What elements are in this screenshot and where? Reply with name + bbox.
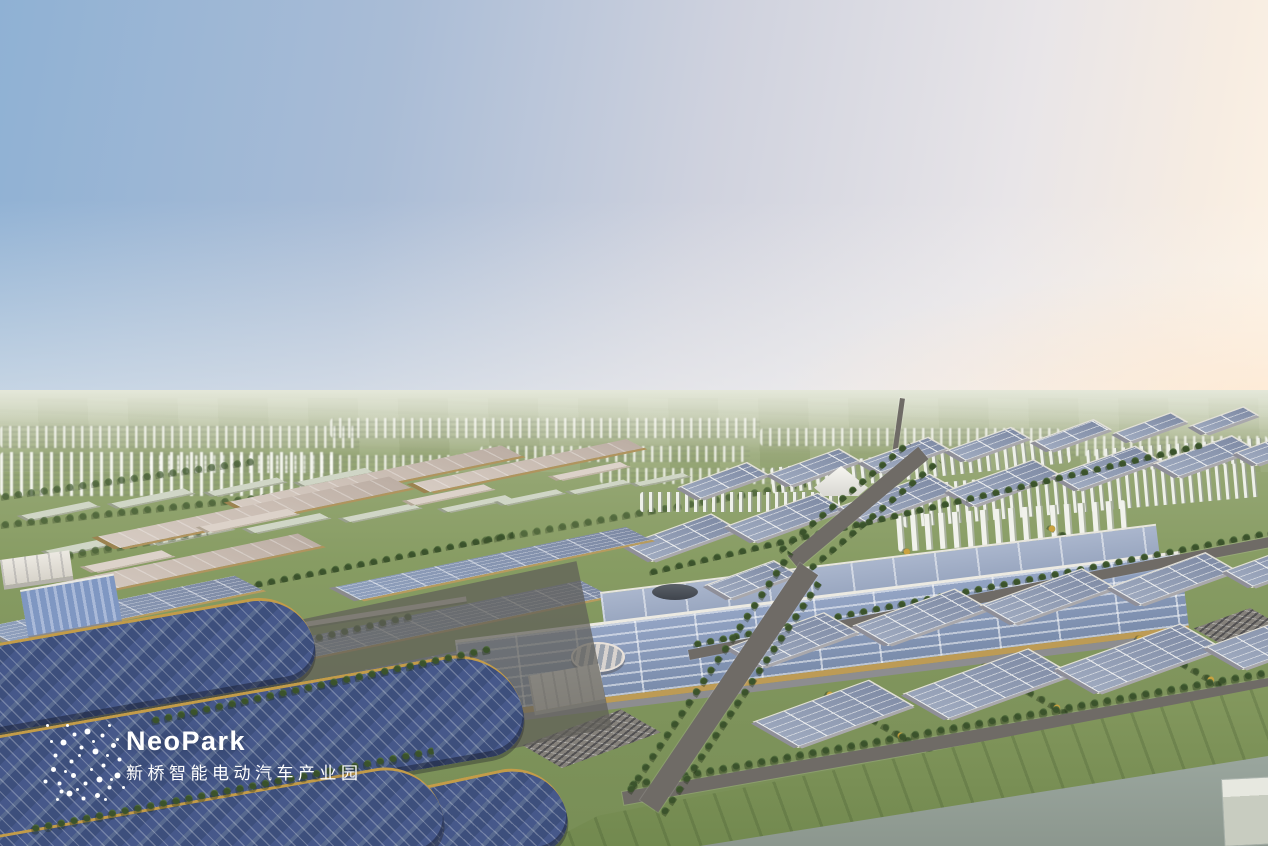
settlement-strip	[330, 418, 760, 438]
neopark-subtitle-text: 新桥智能电动汽车产业园	[126, 765, 363, 782]
neopark-aerial-render: NeoPark 新桥智能电动汽车产业园	[0, 0, 1268, 846]
neopark-logo-text: NeoPark 新桥智能电动汽车产业园	[126, 728, 363, 782]
neopark-logo: NeoPark 新桥智能电动汽车产业园	[44, 714, 584, 826]
settlement-strip	[0, 426, 360, 448]
neopark-logo-mark-icon	[44, 722, 130, 808]
stadium-roof	[652, 584, 698, 600]
neopark-brand-text: NeoPark	[126, 728, 363, 755]
utility-building	[1222, 778, 1268, 846]
dot-cluster-icon	[46, 724, 49, 727]
sky	[0, 0, 1268, 398]
